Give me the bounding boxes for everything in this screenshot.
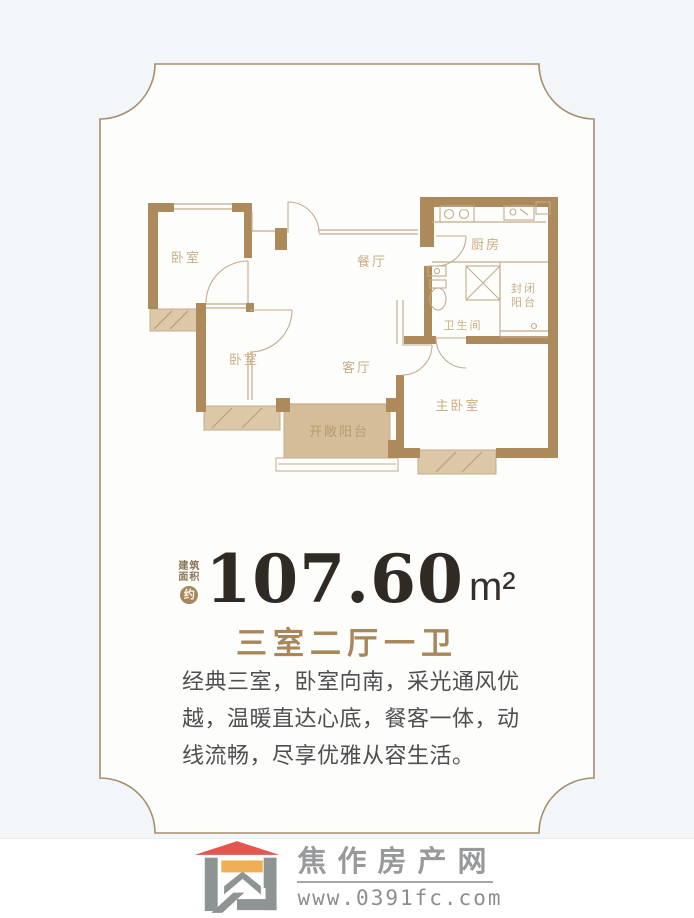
room-label-kitchen: 厨房 [471,237,501,252]
master-bedroom-door [402,345,432,375]
room-label-open-balcony: 开敞阳台 [309,424,369,439]
description-text: 经典三室，卧室向南，采光通风优 越，温暖直达心底，餐客一体，动 线流畅，尽享优雅… [182,663,542,774]
toilet-icon [430,280,446,310]
room-label-bedroom2: 卧室 [229,352,259,367]
built-area-prefix: 建筑 面积 约 [178,561,200,604]
room-label-dining: 餐厅 [357,254,387,269]
bedroom2-door [250,310,292,352]
footer-text-column: 焦作房产网 www.0391fc.com [297,847,502,910]
room-label-living: 客厅 [342,360,372,375]
footer-divider [297,881,493,883]
shower-icon [466,266,500,300]
built-area-block: 建筑 面积 约 107.60 m² [0,548,694,610]
kitchen-sink-icon [504,206,534,220]
layout-title: 三室二厅一卫 [0,618,694,663]
site-url: www.0391fc.com [297,886,502,910]
room-label-closed-balcony-line1: 封闭 [511,281,537,295]
room-label-bedroom1: 卧室 [171,250,201,265]
site-name: 焦作房产网 [297,847,502,877]
room-label-closed-balcony-line2: 阳台 [511,295,537,309]
room-label-bathroom: 卫生间 [444,318,483,332]
area-value: 107.60 [205,548,464,610]
approx-badge: 约 [180,586,198,604]
room-label-master-bedroom: 主卧室 [435,398,480,413]
built-area-label-line1: 建筑 [178,561,200,572]
balcony-drain-icon [532,324,537,329]
logo-accent-bar [222,860,263,872]
page-background: 卧室 卧室 餐厅 客厅 厨房 卫生间 主卧室 开敞阳台 封闭 阳台 建筑 面积 … [0,0,694,917]
site-logo-icon [191,839,283,915]
built-area-label-line2: 面积 [178,572,200,583]
bedroom1-door [206,261,248,303]
footer-bar: 焦作房产网 www.0391fc.com [0,838,694,918]
logo-roof-shape [195,841,280,855]
area-unit: m² [469,567,516,607]
stove-icon [440,206,474,222]
fixtures [428,202,550,329]
entry-door [288,202,319,233]
bathroom-door [436,338,466,368]
